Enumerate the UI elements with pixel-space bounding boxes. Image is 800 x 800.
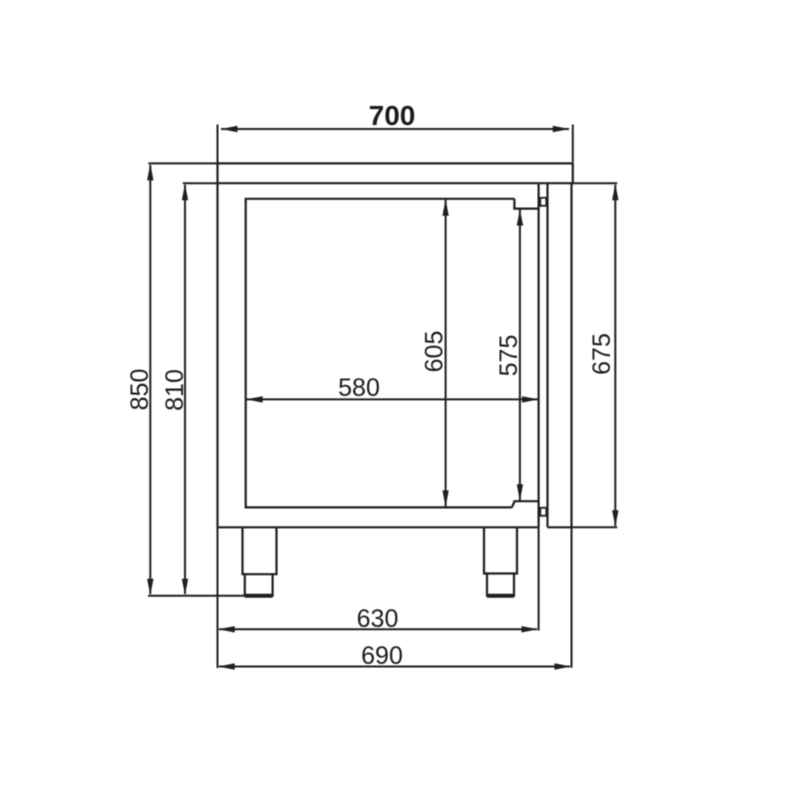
svg-text:690: 690 (361, 642, 403, 670)
svg-text:675: 675 (588, 333, 616, 375)
svg-text:850: 850 (126, 369, 154, 411)
svg-text:580: 580 (338, 374, 380, 402)
svg-text:700: 700 (369, 100, 416, 131)
svg-text:605: 605 (421, 331, 449, 373)
svg-text:810: 810 (161, 369, 189, 411)
svg-text:630: 630 (357, 605, 399, 633)
svg-text:575: 575 (495, 335, 523, 377)
